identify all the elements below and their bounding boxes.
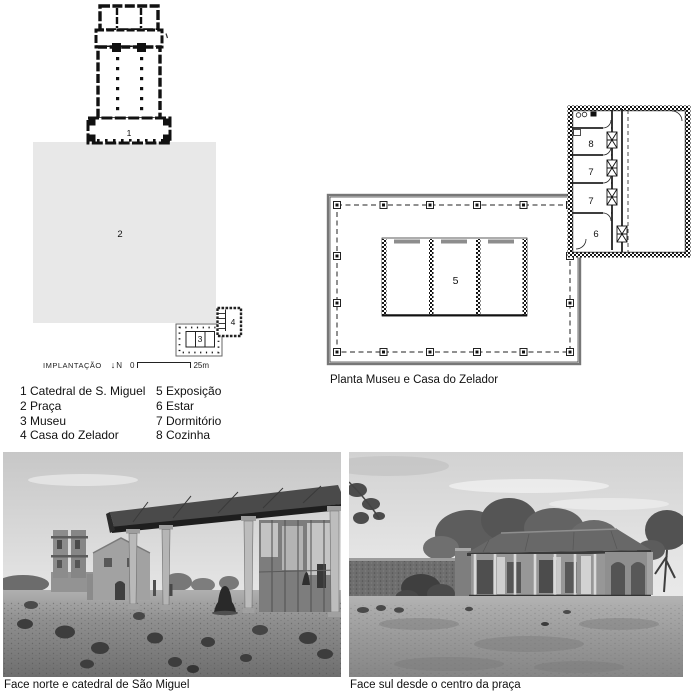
cathedral-plan: 1 bbox=[88, 6, 170, 143]
pavilion bbox=[467, 529, 653, 596]
legend-column-2: 5 Exposição 6 Estar 7 Dormitório 8 Cozin… bbox=[156, 384, 221, 443]
document-page: 3 4 bbox=[0, 0, 695, 695]
plan-num-dormitorio-1: 7 bbox=[588, 167, 593, 178]
museum-hall-plan: 5 bbox=[328, 195, 580, 364]
scale-end: 25m bbox=[193, 361, 209, 371]
legend-item: 4 Casa do Zelador bbox=[20, 428, 145, 443]
legend-item: 3 Museu bbox=[20, 414, 145, 429]
stray-mark bbox=[166, 34, 168, 39]
legend-item: 7 Dormitório bbox=[156, 414, 221, 429]
plan-num-cozinha: 8 bbox=[588, 139, 593, 150]
north-arrow-icon: ↓ bbox=[111, 361, 116, 370]
legend-item: 8 Cozinha bbox=[156, 428, 221, 443]
implantacao-label: IMPLANTAÇÃO bbox=[43, 361, 102, 371]
floor-plan-caption: Planta Museu e Casa do Zelador bbox=[330, 374, 498, 386]
photo-right-caption: Face sul desde o centro da praça bbox=[350, 679, 521, 691]
scale-zero: 0 bbox=[130, 361, 134, 371]
floor-plan-drawing: 5 bbox=[320, 100, 695, 372]
legend-item: 5 Exposição bbox=[156, 384, 221, 399]
museum-footprint: 3 bbox=[176, 324, 222, 356]
glass-wall bbox=[259, 520, 339, 612]
plan-num-dormitorio-2: 7 bbox=[588, 196, 593, 207]
site-num-praca: 2 bbox=[117, 229, 122, 240]
photo-left-image bbox=[3, 452, 341, 677]
arcade bbox=[605, 552, 653, 595]
photo-left-caption: Face norte e catedral de São Miguel bbox=[4, 679, 189, 691]
praca-square bbox=[33, 142, 216, 323]
legend-column-1: 1 Catedral de S. Miguel 2 Praça 3 Museu … bbox=[20, 384, 145, 443]
zelador-plan: 8 7 7 6 bbox=[570, 108, 688, 255]
plan-num-exposicao: 5 bbox=[453, 275, 459, 287]
legend-item: 6 Estar bbox=[156, 399, 221, 414]
portico-columns bbox=[97, 139, 164, 142]
zelador-footprint: 4 bbox=[218, 308, 242, 336]
plan-num-estar: 6 bbox=[593, 229, 598, 240]
site-num-zelador: 4 bbox=[231, 317, 236, 327]
site-num-cathedral: 1 bbox=[127, 128, 132, 138]
legend-item: 1 Catedral de S. Miguel bbox=[20, 384, 145, 399]
legend-item: 2 Praça bbox=[20, 399, 145, 414]
scale-row: IMPLANTAÇÃO ↓ N 0 25m bbox=[43, 361, 209, 373]
site-plan-drawing: 3 4 bbox=[0, 0, 310, 365]
exhibition-rooms: 5 bbox=[382, 238, 527, 316]
photo-right-image bbox=[349, 452, 683, 677]
north-label: N bbox=[116, 361, 122, 371]
scale-bar bbox=[137, 362, 191, 368]
site-num-museu: 3 bbox=[198, 334, 203, 344]
